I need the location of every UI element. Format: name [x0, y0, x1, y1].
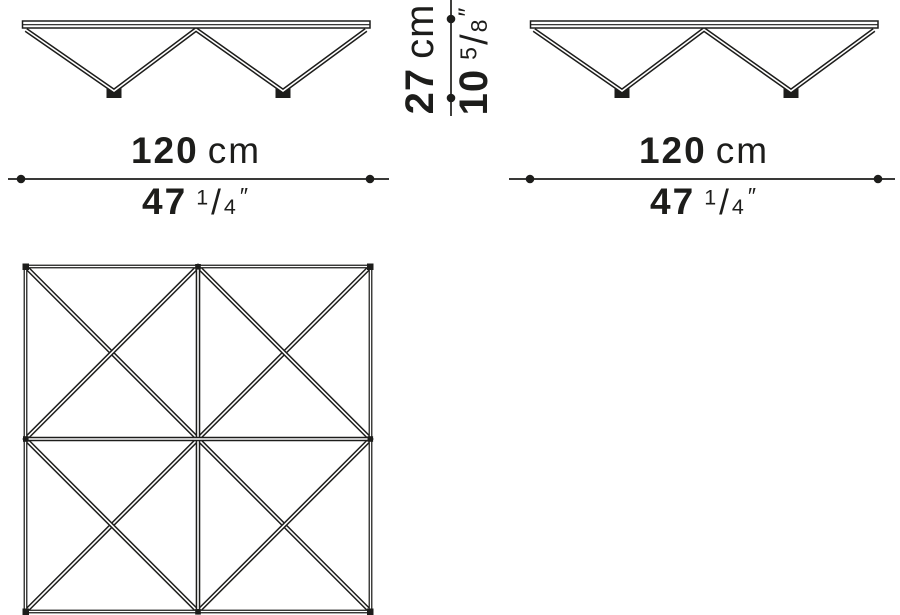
- plan-joint: [195, 264, 201, 270]
- height-metric-label: 27cm: [400, 4, 440, 115]
- side-elevation-view: [531, 21, 879, 98]
- height-in-whole: 10: [452, 69, 496, 116]
- height-in-fraction: 5/8″: [452, 7, 496, 60]
- front-elevation-view: [23, 21, 371, 98]
- plan-joint: [23, 264, 30, 271]
- dimension-endpoint-dot: [17, 175, 26, 184]
- front-width-in-whole: 47: [142, 181, 187, 222]
- side-width-in-fraction: 1/4″: [704, 181, 758, 222]
- front-width-metric-label: 120cm: [131, 132, 261, 169]
- plan-joint: [195, 609, 201, 615]
- dimension-endpoint-dot: [526, 175, 535, 184]
- dimension-endpoint-dot: [874, 175, 883, 184]
- front-width-cm-value: 120: [131, 130, 199, 171]
- technical-drawing-page: 120cm 471/4″ 120cm 471/4″ 27cm 105/8″: [0, 0, 900, 615]
- plan-joint: [367, 264, 374, 271]
- front-width-in-fraction: 1/4″: [196, 181, 250, 222]
- side-zigzag-legs: [534, 30, 874, 92]
- front-zigzag-legs: [26, 30, 366, 92]
- side-width-dimension-line: [509, 175, 895, 184]
- plan-joint: [23, 609, 30, 615]
- side-width-imperial-label: 471/4″: [650, 183, 758, 220]
- furniture-dimension-diagram: [0, 0, 900, 615]
- inch-mark: ″: [240, 183, 250, 209]
- side-width-cm-value: 120: [639, 130, 707, 171]
- height-cm-unit: cm: [398, 4, 442, 59]
- plan-view: [23, 264, 374, 615]
- inch-mark: ″: [748, 183, 758, 209]
- side-width-metric-label: 120cm: [639, 132, 769, 169]
- plan-joint: [367, 609, 374, 615]
- plan-joint: [368, 436, 374, 442]
- side-width-in-whole: 47: [650, 181, 695, 222]
- front-width-imperial-label: 471/4″: [142, 183, 250, 220]
- inch-mark: ″: [455, 7, 482, 17]
- side-width-cm-unit: cm: [716, 130, 769, 171]
- dimension-endpoint-dot: [366, 175, 375, 184]
- plan-joint: [23, 436, 29, 442]
- front-width-cm-unit: cm: [208, 130, 261, 171]
- height-cm-value: 27: [398, 68, 442, 115]
- height-imperial-label: 105/8″: [454, 7, 494, 116]
